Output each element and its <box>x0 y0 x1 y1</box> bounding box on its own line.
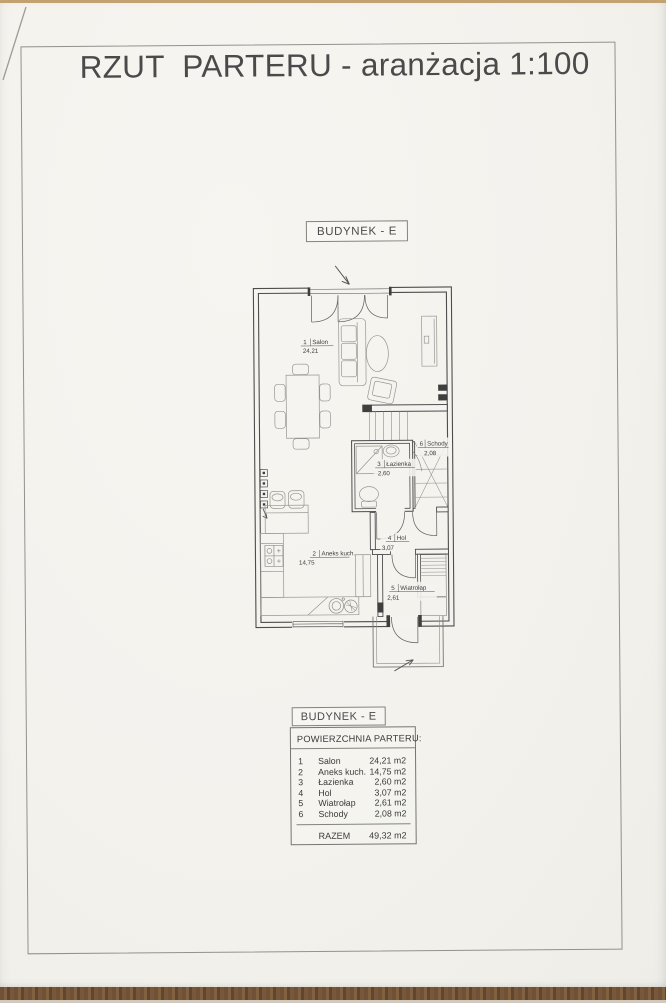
dining-table <box>286 375 319 438</box>
svg-text:Łazienka: Łazienka <box>386 461 411 468</box>
floor-plan: 1 Salon 24,21 2 Aneks kuch. 14,75 3 <box>248 259 461 676</box>
entrance-arrow <box>335 266 349 285</box>
svg-text:Salon: Salon <box>312 339 328 346</box>
row-area: 2,08 m2 <box>375 808 407 819</box>
row-area: 14,75 m2 <box>369 766 406 777</box>
svg-text:6: 6 <box>420 441 424 448</box>
row-area: 2,60 m2 <box>374 777 406 788</box>
bar-stools <box>270 491 304 509</box>
svg-text:Schody: Schody <box>427 440 449 447</box>
svg-text:Aneks kuch.: Aneks kuch. <box>321 550 355 557</box>
legend-header: POWIERZCHNIA PARTERU: <box>291 727 415 749</box>
svg-text:2,61: 2,61 <box>387 595 400 602</box>
kitchen-sink <box>329 598 357 613</box>
legend-table: POWIERZCHNIA PARTERU: 1 Salon 24,21 m2 2… <box>290 726 417 845</box>
page-title: RZUT PARTERU - aranżacja 1:100 <box>79 45 589 86</box>
room-label-salon: 1 Salon 24,21 <box>301 338 334 355</box>
row-area: 3,07 m2 <box>374 787 406 798</box>
row-name: Wiatrołap <box>318 798 374 809</box>
svg-text:4: 4 <box>388 535 392 542</box>
row-name: Łazienka <box>318 777 374 788</box>
row-no: 1 <box>298 756 318 767</box>
legend-total-row: RAZEM 49,32 m2 <box>297 823 411 841</box>
row-area: 24,21 m2 <box>369 755 406 766</box>
row-no: 3 <box>298 777 318 788</box>
row-name: Salon <box>318 756 369 767</box>
sideboard <box>422 316 437 366</box>
row-no: 4 <box>298 788 318 799</box>
svg-text:3,07: 3,07 <box>382 545 395 552</box>
svg-text:3: 3 <box>377 461 381 468</box>
room-label-hol: 4 Hol 3,07 <box>380 533 411 552</box>
legend-row: 6 Schody 2,08 m2 <box>298 808 406 819</box>
svg-text:Hol: Hol <box>397 535 406 542</box>
row-name: Hol <box>318 787 374 798</box>
row-no: 5 <box>298 798 318 809</box>
kitchen-counters <box>260 505 371 616</box>
sheet-content: RZUT PARTERU - aranżacja 1:100 BUDYNEK -… <box>0 0 666 1003</box>
coffee-table <box>366 335 388 371</box>
legend-building-label: BUDYNEK - E <box>292 707 386 727</box>
room-label-aneks: 2 Aneks kuch. 14,75 <box>299 550 356 567</box>
svg-text:2: 2 <box>312 551 316 558</box>
armchair <box>367 377 397 405</box>
row-name: Schody <box>318 809 374 820</box>
room-label-lazienka: 3 Łazienka 2,60 <box>374 459 416 478</box>
meter-boxes <box>260 469 267 518</box>
room-label-wiatrolap: 5 Wiatrołap 2,61 <box>385 582 437 602</box>
svg-text:24,21: 24,21 <box>303 348 319 355</box>
total-area: 49,32 m2 <box>369 830 407 840</box>
svg-text:Wiatrołap: Wiatrołap <box>400 585 427 592</box>
legend-rows: 1 Salon 24,21 m2 2 Aneks kuch. 14,75 m2 … <box>291 748 416 820</box>
scanned-photo: RZUT PARTERU - aranżacja 1:100 BUDYNEK -… <box>0 0 666 1000</box>
room-label-schody: 6 Schody 2,08 <box>417 437 449 457</box>
svg-text:14,75: 14,75 <box>299 560 315 567</box>
stair-wall <box>362 404 447 412</box>
chimney-blocks <box>438 385 447 401</box>
porch-entrance-arrow <box>394 660 413 671</box>
svg-text:2,08: 2,08 <box>424 450 437 457</box>
svg-text:1: 1 <box>303 339 307 346</box>
sofa <box>339 319 367 386</box>
row-name: Aneks kuch. <box>318 766 369 777</box>
svg-text:5: 5 <box>391 585 395 592</box>
row-no: 6 <box>298 809 318 820</box>
building-label: BUDYNEK - E <box>306 220 408 242</box>
wall-block <box>377 603 383 613</box>
row-no: 2 <box>298 767 318 778</box>
total-label: RAZEM <box>319 830 370 840</box>
row-area: 2,61 m2 <box>375 798 407 809</box>
stove <box>265 545 283 566</box>
dining-chairs <box>274 364 330 449</box>
svg-text:2,60: 2,60 <box>378 470 391 477</box>
